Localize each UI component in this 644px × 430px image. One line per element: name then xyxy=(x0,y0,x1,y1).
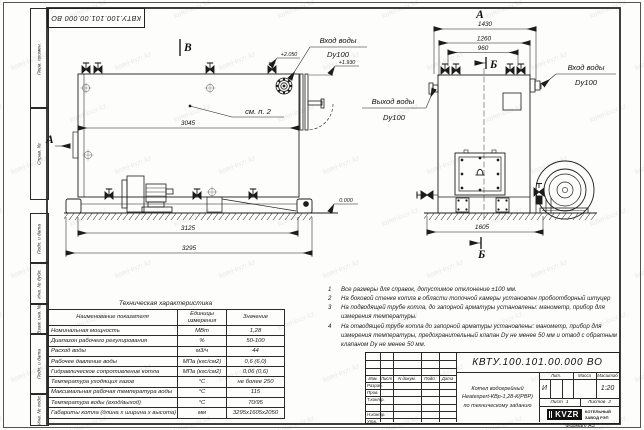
col-ndokum: N докум. xyxy=(393,375,421,382)
crosshair-icon xyxy=(205,83,216,94)
dim-3295: 3295 xyxy=(182,245,197,252)
elevation-zero: 0.000 xyxy=(339,198,353,204)
boiler-skid xyxy=(66,197,312,213)
flue-outlet xyxy=(300,74,333,130)
fan-icon xyxy=(536,161,594,219)
row-razrab: Разраб. xyxy=(367,382,393,389)
title-block: КВТУ.100.101.00.000 ВО Изм. Лист N докум… xyxy=(365,352,620,424)
section-label-b-bottom: Б xyxy=(477,249,485,261)
table-row: Расход водым3/ч44 xyxy=(48,346,285,356)
dim-3125: 3125 xyxy=(181,225,196,232)
col-list: Лист xyxy=(380,375,393,382)
see-note-label: см. п. 2 xyxy=(245,107,272,116)
col-header: Единицы измерения xyxy=(178,310,227,326)
view-label-a: А xyxy=(475,9,484,21)
view-label-b: В xyxy=(183,42,192,54)
sheet-cell: Лист1 xyxy=(539,398,580,406)
table-row: Габариты котла (длина х ширина х высота)… xyxy=(48,408,285,418)
blower-motor xyxy=(122,176,173,212)
top-stamp-doc-number: КВТУ.100.101.00.000 ВО xyxy=(51,14,141,23)
frame-cell-podp-data-1: Подп. и дата xyxy=(30,213,49,264)
lit-value: И xyxy=(539,379,550,398)
crosshair-icon xyxy=(207,187,218,198)
row-tkontr: Т.контр. xyxy=(367,396,393,403)
dim-1605: 1605 xyxy=(475,224,490,231)
inlet-nozzle xyxy=(530,79,541,92)
valve-icon xyxy=(206,63,214,73)
water-inlet-label-side: Вход воды xyxy=(320,36,357,45)
kvzr-logo: KVZR xyxy=(547,409,582,420)
row-nkontr: Н.контр. xyxy=(367,411,393,418)
mass-label: Масса xyxy=(573,372,596,379)
inspection-hatch xyxy=(503,93,521,110)
valve-icon xyxy=(452,64,460,74)
frame-cell-inv-dubl: Инв. № дубл. xyxy=(30,262,49,305)
note-item: 3На подводящей трубе котла, до запорной … xyxy=(328,303,620,321)
company-name: КОТЕЛЬНЫЙ ЗАВОД РЭП xyxy=(585,409,611,419)
drain-valve-front xyxy=(417,191,438,199)
valve-icon xyxy=(193,189,201,199)
crosshair-icon xyxy=(81,83,92,94)
table-row: Температура воды (вход/выход)°С70/95 xyxy=(48,398,285,408)
scale-label: Масштаб xyxy=(596,372,619,379)
water-inlet-label-front: Вход воды xyxy=(568,63,605,72)
tech-characteristics: Техническая характеристика Наименование … xyxy=(47,300,284,419)
top-stamp: КВТУ.100.101.00.000 ВО xyxy=(47,8,145,28)
title-block-description: Котел водогрейный Heatexpert-КВр-1,28-К(… xyxy=(456,372,539,423)
col-header: Значение xyxy=(227,310,285,326)
tech-table-title: Техническая характеристика xyxy=(47,300,284,307)
table-row: Максимальная рабочая температура воды°С1… xyxy=(48,387,285,397)
dim-960: 960 xyxy=(478,45,489,52)
note-item: 4На отводящей трубе котла до запорной ар… xyxy=(328,322,620,349)
tech-table: Наименование показателя Единицы измерени… xyxy=(47,309,285,419)
title-block-doc-number: КВТУ.100.101.00.000 ВО xyxy=(456,353,619,372)
scale-value: 1:20 xyxy=(596,379,619,398)
drawing-sheet: kotel-kvzr.kzkotel-kvzr.kzkotel-kvzr.kzk… xyxy=(0,0,644,430)
ground-line-front xyxy=(424,213,597,220)
section-label-b-top: Б xyxy=(489,59,497,71)
sheets-cell: Листов2 xyxy=(580,398,619,406)
notes-list: 1Все размеры для справок, допустимое отк… xyxy=(328,285,620,349)
valve-icon xyxy=(105,189,113,199)
note-item: 1Все размеры для справок, допустимое отк… xyxy=(328,285,620,294)
ground-line xyxy=(64,213,338,220)
front-view-texts: А Б Б 1430 1260 960 1605 Вход воды Dy100… xyxy=(372,9,605,261)
frame-cell-sprav: Справ. № xyxy=(30,107,49,200)
dim-1430: 1430 xyxy=(478,21,493,28)
water-outlet-label: Выход воды xyxy=(372,97,415,106)
valve-icon xyxy=(82,63,90,73)
col-izm: Изм. xyxy=(366,375,380,382)
dim-1260: 1260 xyxy=(477,36,492,43)
company-cell: KVZR КОТЕЛЬНЫЙ ЗАВОД РЭП xyxy=(539,406,619,423)
front-view xyxy=(417,64,597,220)
col-header: Наименование показателя xyxy=(48,310,178,326)
elevation-top: +2.050 xyxy=(281,52,298,58)
table-row: Номинальная мощностьМВт1,28 xyxy=(48,326,285,336)
water-inlet-dn-front: Dy100 xyxy=(575,78,598,87)
col-podp: Подп. xyxy=(421,375,439,382)
side-view xyxy=(64,63,338,220)
format-label: Формат А3 xyxy=(540,423,620,429)
col-data: Дата xyxy=(439,375,456,382)
water-inlet-dn-side: Dy100 xyxy=(327,50,350,59)
outlet-nozzle xyxy=(429,83,438,94)
dim-3045: 3045 xyxy=(181,120,196,127)
inlet-flange-icon xyxy=(276,78,292,94)
table-row: Температура уходящих газов°Сне более 250 xyxy=(48,377,285,387)
table-row: Гидравлическое сопротивление котлаМПа (к… xyxy=(48,367,285,377)
table-row: Диапазон рабочего регулирования%50-100 xyxy=(48,336,285,346)
valve-icon xyxy=(94,63,102,73)
row-prov: Пров. xyxy=(367,389,393,396)
valve-icon xyxy=(249,189,257,199)
valve-icon xyxy=(506,64,514,74)
table-row: Рабочее давление водыМПа (кгс/см2)0,6 (6… xyxy=(48,356,285,366)
note-item: 2На боковой стенке котла в области топоч… xyxy=(328,294,620,303)
water-outlet-dn: Dy100 xyxy=(383,113,406,122)
elevation-pipe: +1.930 xyxy=(339,60,356,66)
door-handle-icon xyxy=(477,169,483,175)
table-header-row: Наименование показателя Единицы измерени… xyxy=(48,310,285,326)
row-utv: Утв. xyxy=(367,418,393,425)
frame-cell-perv-primen: Перв. примен. xyxy=(30,8,49,109)
lit-label: Лит. xyxy=(539,372,573,379)
furnace-door xyxy=(455,150,505,195)
boiler-body-side xyxy=(78,74,299,197)
